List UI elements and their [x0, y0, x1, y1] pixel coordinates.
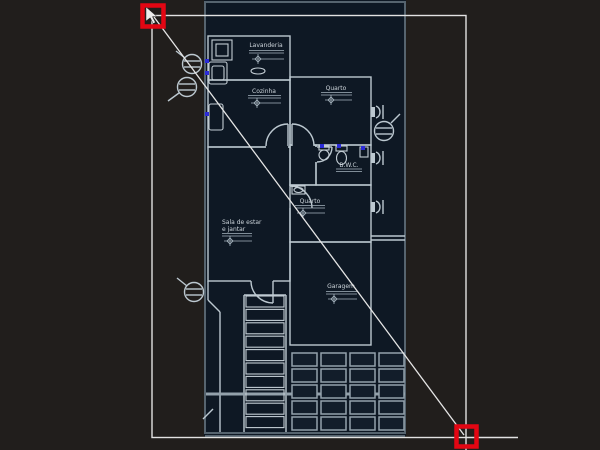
- room-label-lavanderia: Lavanderia: [249, 42, 283, 49]
- cad-viewport[interactable]: Lavanderia Cozinha Quarto B.W.C. Quarto …: [0, 0, 600, 450]
- paver-cell: [292, 417, 317, 430]
- room-label-quarto-mid: Quarto: [300, 198, 321, 205]
- paver-cell: [292, 369, 317, 382]
- paver-cell: [292, 385, 317, 398]
- room-label-quarto-top: Quarto: [326, 85, 347, 92]
- opening-cozinha: [266, 145, 288, 148]
- opening-front-door: [251, 279, 273, 282]
- opening-bwc: [314, 147, 317, 162]
- wall-light-base: [372, 202, 376, 212]
- paver-cell: [321, 353, 346, 366]
- paver-cell: [321, 417, 346, 430]
- opening-quarto-top: [292, 143, 314, 146]
- paver-cell: [321, 369, 346, 382]
- paver-cell: [379, 385, 404, 398]
- room-label-bwc: B.W.C.: [339, 162, 358, 169]
- paver-cell: [350, 417, 375, 430]
- wall-light-base: [372, 153, 376, 163]
- room-label-cozinha: Cozinha: [252, 88, 276, 95]
- paver-cell: [350, 369, 375, 382]
- object-grip[interactable]: [337, 144, 341, 148]
- paver-cell: [379, 401, 404, 414]
- paver-cell: [292, 401, 317, 414]
- paver-cell: [379, 417, 404, 430]
- object-grip[interactable]: [320, 144, 324, 148]
- paver-cell: [350, 385, 375, 398]
- cad-application-window: Lavanderia Cozinha Quarto B.W.C. Quarto …: [0, 0, 600, 450]
- paver-cell: [350, 353, 375, 366]
- paver-cell: [292, 353, 317, 366]
- room-label-sala-line2: e jantar: [222, 226, 246, 233]
- paver-cell: [379, 353, 404, 366]
- object-grip[interactable]: [205, 71, 209, 75]
- paver-cell: [350, 401, 375, 414]
- paver-cell: [321, 401, 346, 414]
- paver-cell: [321, 385, 346, 398]
- object-grip[interactable]: [205, 59, 209, 63]
- room-label-garagem: Garagem: [327, 283, 355, 290]
- room-label-sala-line1: Sala de estar: [222, 219, 262, 226]
- wall-light-base: [372, 107, 376, 117]
- object-grip[interactable]: [205, 112, 209, 116]
- paver-cell: [379, 369, 404, 382]
- object-grip[interactable]: [361, 146, 365, 150]
